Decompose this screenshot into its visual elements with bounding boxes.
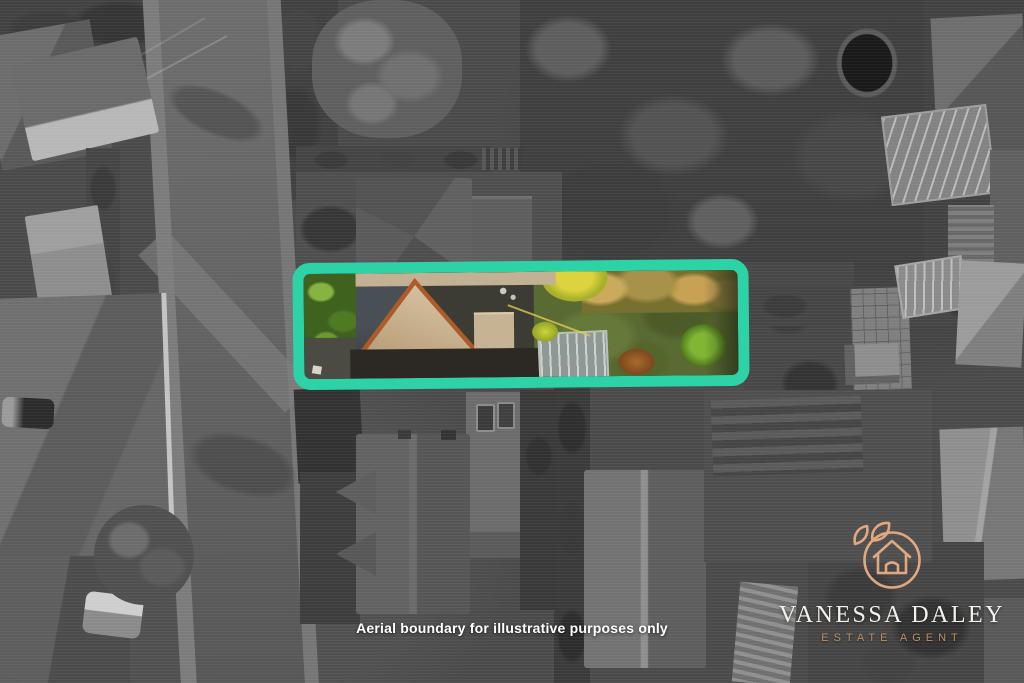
highlighted-plot	[304, 270, 739, 379]
garden-furniture	[498, 286, 520, 302]
house-icon	[874, 541, 910, 573]
small-leaf-icon	[855, 526, 868, 544]
yellow-bush	[532, 322, 558, 342]
roof-edge	[356, 272, 556, 287]
house-in-circle-icon	[842, 508, 942, 600]
brand-tagline: ESTATE AGENT	[742, 632, 1024, 644]
shadow	[703, 270, 738, 375]
brand-name: VANESSA DALEY	[742, 602, 1024, 629]
driveway	[350, 348, 566, 379]
bin	[312, 365, 322, 374]
aerial-photo: Aerial boundary for illustrative purpose…	[0, 0, 1024, 683]
property-boundary-overlay	[292, 259, 749, 390]
agency-logo: VANESSA DALEY ESTATE AGENT	[742, 508, 1024, 644]
